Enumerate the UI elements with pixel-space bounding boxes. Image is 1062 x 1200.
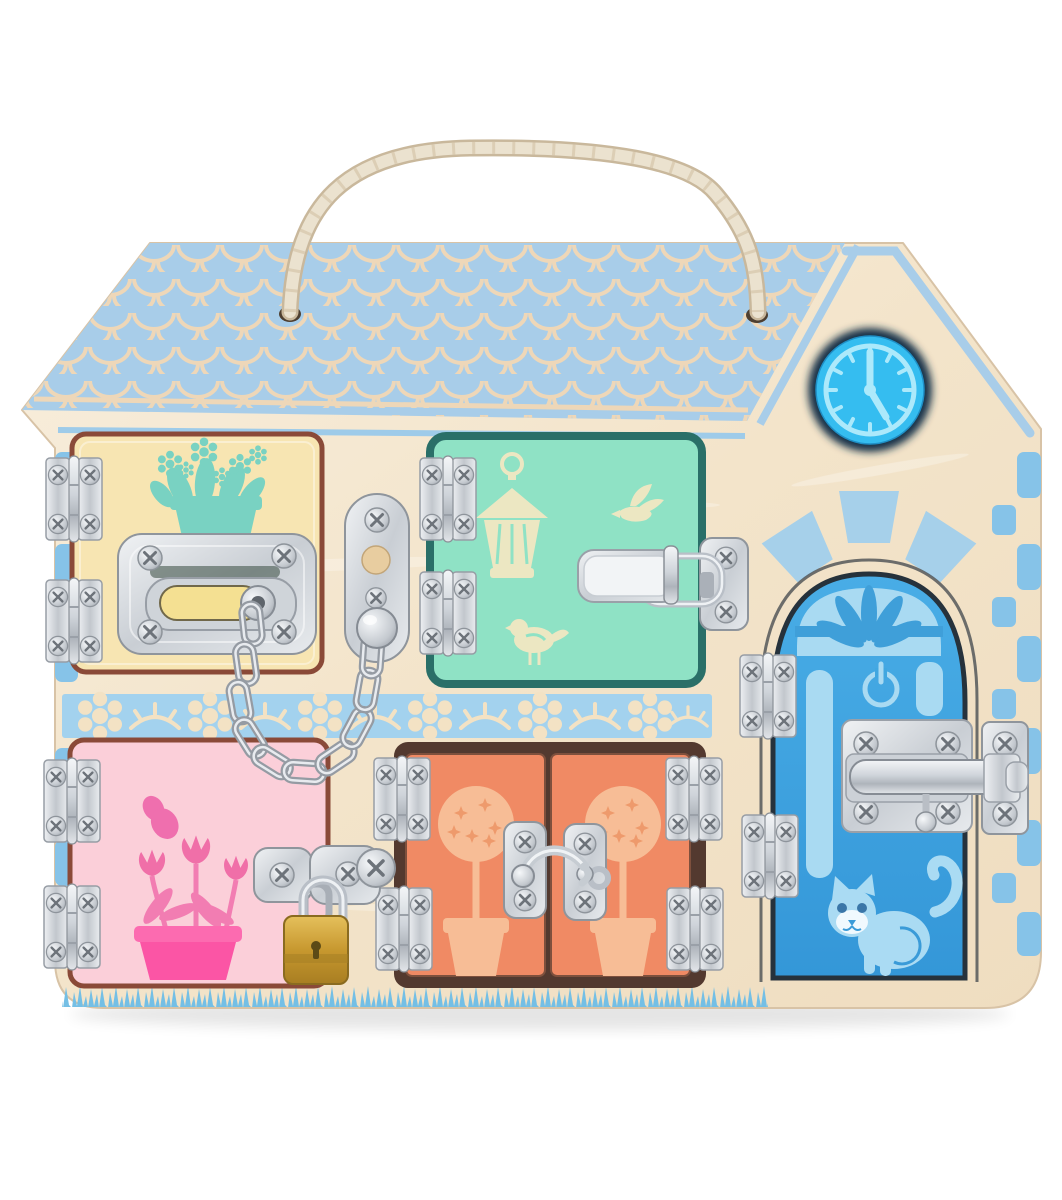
roof-shingles [22,243,845,421]
chain-ball-end [357,608,397,648]
busy-board-illustration [0,0,1062,1200]
door-orange-double [394,742,706,988]
door-panel-right [916,662,943,716]
busy-board-product-photo [0,0,1062,1200]
bolt-knob [916,812,936,832]
hook-pivot [512,865,534,887]
door-chain-lock [118,534,316,654]
clock [808,328,932,452]
round-screw-plate [357,849,395,887]
floral-band [62,692,712,740]
wood-hole [362,546,390,574]
door-panel-left [806,670,833,878]
barrel-bolt [842,720,1028,834]
